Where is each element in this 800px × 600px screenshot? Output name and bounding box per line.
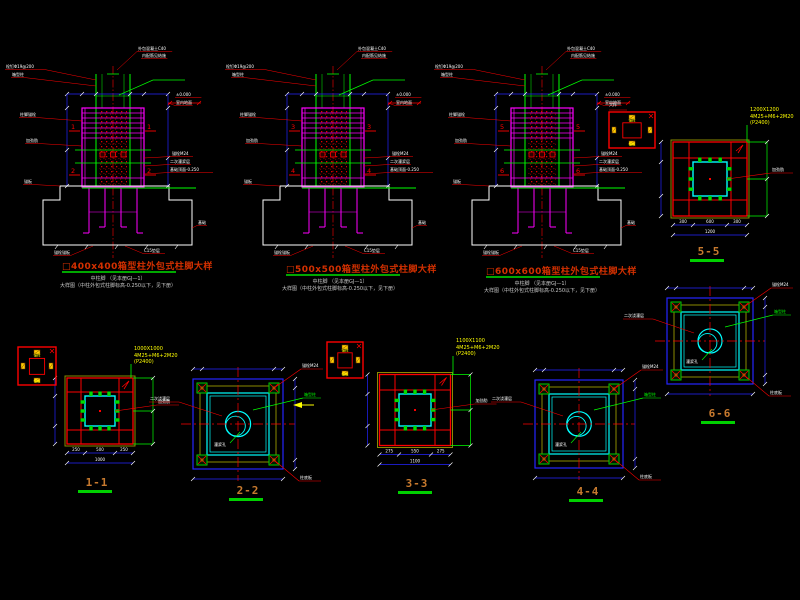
stiffener-tab <box>404 426 407 431</box>
stiffener-tab <box>719 196 722 201</box>
stiffener-tab <box>708 196 711 201</box>
annotation-leader <box>144 165 169 167</box>
annotation-leader <box>71 246 93 256</box>
section-label-1-1: 1-1 <box>75 476 119 489</box>
annotation-leader <box>462 185 489 187</box>
annotation-text: 灌浆孔 <box>214 441 226 447</box>
annotation-text: 基础 <box>627 219 635 225</box>
annotation-leader <box>265 70 316 81</box>
dim-label: 250 <box>72 447 80 452</box>
annotation-text: 锚板 <box>24 178 32 184</box>
annotation-text: 箱型柱 <box>12 71 24 77</box>
dim-label: 1000 <box>95 457 106 462</box>
annotation-text: 柱脚锚栓 <box>240 111 256 117</box>
annotation-text: 锚栓锚板 <box>274 249 290 255</box>
annotation-text: 栓钉Φ19@200 <box>226 63 254 69</box>
annotation-text: 箱型柱 <box>644 391 656 397</box>
dim-label: 300 <box>733 219 741 224</box>
section-marker: 6 <box>500 167 504 175</box>
annotation-leader <box>37 118 82 122</box>
annotation-leader <box>45 70 96 81</box>
dim-label: 250 <box>120 447 128 452</box>
annotation-text: 内配筋见结施 <box>571 52 595 58</box>
keybox-inner <box>338 353 352 368</box>
shear-key <box>550 152 555 157</box>
note-line: 大样图（中柱外包式柱脚标高-0.250以下，见下册） <box>8 283 228 290</box>
annotation-text: 基础顶面-0.250 <box>170 166 199 172</box>
annotation-text: ±0.000 <box>176 92 191 97</box>
annotation-leader <box>474 70 525 81</box>
annotation-leader <box>144 157 171 159</box>
annotation-leader <box>257 118 302 122</box>
shear-key <box>121 152 126 157</box>
keybox-label: 锚板 <box>342 372 350 377</box>
anchor-bolt-head <box>542 457 545 460</box>
grout-hole-inner <box>567 416 586 435</box>
elevation-view-d400: 1122栓钉Φ19@200箱型柱外包混凝土C40内配筋见结施±0.000室内地面… <box>5 45 213 258</box>
annotation-leader <box>554 246 572 254</box>
dim-label: 1200 <box>705 229 716 234</box>
annotation-leader <box>466 118 511 122</box>
stiffener-tab <box>727 167 732 170</box>
stiffener-tab <box>395 418 400 421</box>
shear-key <box>529 152 534 157</box>
annotation-leader <box>192 226 197 229</box>
annotation-text: 箱型柱 <box>304 391 316 397</box>
stiffener-tab <box>413 390 416 395</box>
footing-hatch <box>115 245 118 249</box>
annotation-leader <box>117 52 137 71</box>
annotation-text: 加劲肋 <box>772 166 784 172</box>
stiffener-tab <box>98 426 101 431</box>
title-underline <box>62 271 176 273</box>
footing-hatch <box>484 245 487 249</box>
annotation-text: ±0.000 <box>396 92 411 97</box>
center-point <box>414 409 416 411</box>
anchor-callout-1-1: 1000X1000 4M25+M6+2M20 (P2400) <box>134 346 178 366</box>
annotation-text: C15垫层 <box>144 247 160 253</box>
keybox-inner <box>623 123 641 138</box>
detail-notes-d400: 中柱脚 （见本册GJ—1） 大样图（中柱外包式柱脚标高-0.250以下，见下册） <box>8 276 228 290</box>
section-marker: 4 <box>291 167 295 175</box>
annotation-leader-green <box>253 398 303 410</box>
stiffener-tab <box>689 177 694 180</box>
concrete-fill <box>99 110 127 186</box>
annotation-text: 锚栓M24 <box>772 281 789 287</box>
plan-view-5-5: 3006003001200加劲肋 <box>659 125 793 237</box>
stiffener-tab <box>431 418 436 421</box>
section-label-underline <box>398 491 432 494</box>
note-line: 中柱脚 （见本册GJ—1） <box>432 281 652 288</box>
annotation-leader <box>24 78 96 87</box>
stiffener-tab <box>708 158 711 163</box>
detail-notes-d500: 中柱脚 （见本册GJ—1） 大样图（中柱外包式柱脚标高-0.250以下，见下册） <box>230 279 450 293</box>
stiffener-tab <box>107 392 110 397</box>
annotation-text: 加劲肋 <box>455 137 467 143</box>
annotation-leader-green <box>594 398 643 410</box>
anchor-bolt-head <box>200 386 203 389</box>
annotation-text: 锚栓M24 <box>392 150 409 156</box>
section-label-6-6: 6-6 <box>698 407 742 420</box>
grout-hole-inner <box>226 416 246 436</box>
annotation-text: 室内地面 <box>396 99 412 105</box>
footing-hatch <box>544 245 547 249</box>
concrete-fill <box>528 110 556 186</box>
dim-label: 600 <box>706 219 714 224</box>
grout-hole-inner <box>698 334 717 353</box>
section-marker: 1 <box>147 123 151 131</box>
plan-view-4-4: 锚栓M24柱底板二次浇灌层箱型柱灌浆孔 <box>491 363 663 480</box>
annotation-text: 锚板 <box>244 178 252 184</box>
section-label-underline <box>78 490 112 493</box>
stiffener-tab <box>81 409 86 412</box>
dim-label: 300 <box>679 219 687 224</box>
stiffener-tab <box>115 418 120 421</box>
annotation-text: 柱底板 <box>770 389 782 395</box>
section-marker: 3 <box>291 123 295 131</box>
annotation-leader <box>337 52 357 71</box>
annotation-text: 加劲肋 <box>476 397 488 403</box>
annotation-text: 栓钉Φ19@200 <box>435 63 463 69</box>
annotation-text: 基础 <box>418 219 426 225</box>
plan-view-3-3: 2755502751100加劲肋 <box>366 356 497 467</box>
section-label-2-2: 2-2 <box>226 484 270 497</box>
anchor-callout-5-5: 1200X1200 4M25+M6+2M20 (P2400) <box>750 107 794 127</box>
annotation-text: 外包混凝土C40 <box>567 45 595 51</box>
annotation-text: 基础顶面-0.250 <box>599 166 628 172</box>
annotation-leader <box>244 78 316 87</box>
annotation-text: 锚栓M24 <box>601 150 618 156</box>
annotation-leader <box>253 185 280 187</box>
footing-outline <box>472 186 621 245</box>
stiffener-tab <box>727 188 732 191</box>
stiffener-tab <box>81 418 86 421</box>
plan-view-1-1: 2505002501000加劲肋 <box>53 364 179 465</box>
stiffener-tab <box>395 399 400 402</box>
annotation-leader <box>33 185 60 187</box>
stiffener-tab <box>89 426 92 431</box>
annotation-leader <box>258 144 302 147</box>
annotation-text: 内配筋见结施 <box>142 52 166 58</box>
title-underline <box>486 276 600 278</box>
stiffener-tab <box>719 158 722 163</box>
annotation-text: 灌浆孔 <box>686 358 698 364</box>
section-marker: 3 <box>367 123 371 131</box>
annotation-text: C15垫层 <box>364 247 380 253</box>
footing-hatch <box>55 245 58 249</box>
annotation-leader <box>546 52 566 71</box>
annotation-text: 柱脚锚栓 <box>20 111 36 117</box>
footing-outline <box>263 186 412 245</box>
footing-hatch <box>335 245 338 249</box>
stiffener-tab <box>89 392 92 397</box>
annotation-text: 二次灌浆层 <box>170 158 190 164</box>
shear-key <box>111 152 116 157</box>
footing-outline <box>43 186 192 245</box>
annotation-text: 栓钉Φ19@200 <box>6 63 34 69</box>
stiffener-tab <box>698 158 701 163</box>
annotation-leader <box>453 78 525 87</box>
annotation-text: 灌浆孔 <box>555 441 567 447</box>
elevation-view-d600: 5566栓钉Φ19@200箱型柱外包混凝土C40内配筋见结施±0.000室内地面… <box>434 45 642 258</box>
annotation-text: 外包混凝土C40 <box>138 45 166 51</box>
anchor-bolt-head <box>542 387 545 390</box>
annotation-text: 二次灌浆层 <box>390 158 410 164</box>
section-label-underline <box>690 259 724 262</box>
annotation-text: 柱底板 <box>640 473 652 479</box>
annotation-text: 二次浇灌层 <box>624 312 644 318</box>
annotation-leader <box>291 246 313 256</box>
annotation-leader <box>125 246 143 254</box>
plan-view-6-6: 锚栓M24柱底板二次浇灌层箱型柱灌浆孔 <box>623 281 793 396</box>
callout-line: (P2400) <box>750 120 794 127</box>
anchor-callout-3-3: 1100X1100 4M25+M6+2M20 (P2400) <box>456 338 500 358</box>
anchor-bolt-head <box>674 305 677 308</box>
annotation-leader <box>412 226 417 229</box>
annotation-text: 室内地面 <box>176 99 192 105</box>
annotation-text: 箱型柱 <box>232 71 244 77</box>
annotation-text: 柱底板 <box>300 474 312 480</box>
annotation-text: 锚栓M24 <box>642 363 659 369</box>
annotation-text: C15垫层 <box>573 247 589 253</box>
keybox-inner <box>29 358 44 374</box>
center-point <box>709 178 711 180</box>
stiffener-tab <box>698 196 701 201</box>
annotation-text: 加劲肋 <box>26 137 38 143</box>
dim-label: 550 <box>411 449 419 454</box>
break-mark <box>440 378 447 386</box>
note-line: 大样图（中柱外包式柱脚标高-0.250以下，见下册） <box>432 288 652 295</box>
section-label-5-5: 5-5 <box>687 245 731 258</box>
annotation-leader <box>38 144 82 147</box>
callout-line: (P2400) <box>456 351 500 358</box>
stiffener-tab <box>404 390 407 395</box>
annotation-text: 箱型柱 <box>774 308 786 314</box>
detail-notes-d600: 中柱脚 （见本册GJ—1） 大样图（中柱外包式柱脚标高-0.250以下，见下册） <box>432 281 652 295</box>
stiffener-tab <box>81 400 86 403</box>
annotation-text: 基础 <box>198 219 206 225</box>
stiffener-tab <box>431 399 436 402</box>
annotation-text: 内配筋见结施 <box>362 52 386 58</box>
annotation-leader <box>573 157 600 159</box>
annotation-text: 二次浇灌层 <box>492 395 512 401</box>
footing-hatch <box>604 245 607 249</box>
break-mark <box>736 145 743 153</box>
annotation-text: 锚栓M24 <box>302 362 319 368</box>
break-mark <box>122 381 129 389</box>
annotation-text: 加劲肋 <box>246 137 258 143</box>
note-line: 中柱脚 （见本册GJ—1） <box>8 276 228 283</box>
annotation-leader <box>345 246 363 254</box>
keybox-label: 锚板 <box>34 379 41 384</box>
annotation-text: 锚栓M24 <box>172 150 189 156</box>
keybox-caption: 大样 <box>609 102 617 108</box>
footing-hatch <box>395 245 398 249</box>
yellow-marker-icon <box>293 402 302 408</box>
annotation-text: 锚栓锚板 <box>483 249 499 255</box>
annotation-text: 锚板 <box>453 178 461 184</box>
dim-label: 275 <box>385 449 393 454</box>
anchor-bolt-head <box>674 373 677 376</box>
section-marker: 5 <box>500 123 504 131</box>
keybox-label: 锚板 <box>629 142 637 147</box>
annotation-leader <box>573 165 598 167</box>
drawing-linework: 1122栓钉Φ19@200箱型柱外包混凝土C40内配筋见结施±0.000室内地面… <box>0 0 800 600</box>
dim-label: 275 <box>437 449 445 454</box>
keyed-detail-box: 锚栓锚板 <box>609 110 655 148</box>
annotation-leader <box>467 144 511 147</box>
annotation-text: 二次灌浆层 <box>599 158 619 164</box>
stiffener-tab <box>115 400 120 403</box>
section-marker: 5 <box>576 123 580 131</box>
footing-hatch <box>175 245 178 249</box>
footing-hatch <box>275 245 278 249</box>
annotation-text: 柱脚锚栓 <box>449 111 465 117</box>
shear-key <box>331 152 336 157</box>
annotation-text: ±0.000 <box>605 92 620 97</box>
anchor-bolt-head <box>200 458 203 461</box>
keyed-detail-box: 锚栓锚板 <box>18 347 56 385</box>
annotation-leader <box>500 246 522 256</box>
shear-key <box>341 152 346 157</box>
annotation-leader-green <box>230 432 240 443</box>
plan-view-2-2: 锚栓M24柱底板二次浇灌层箱型柱灌浆孔 <box>149 362 323 481</box>
section-marker: 1 <box>71 123 75 131</box>
annotation-leader-green <box>571 432 581 443</box>
annotation-text: 锚栓锚板 <box>54 249 70 255</box>
annotation-text: 箱型柱 <box>441 71 453 77</box>
annotation-leader <box>115 405 157 411</box>
section-label-3-3: 3-3 <box>395 477 439 490</box>
center-point <box>99 410 101 412</box>
stiffener-tab <box>107 426 110 431</box>
stiffener-tab <box>395 408 400 411</box>
section-label-underline <box>229 498 263 501</box>
shear-key <box>320 152 325 157</box>
section-label-underline <box>569 499 603 502</box>
keybox-label: 锚栓 <box>629 118 637 123</box>
stiffener-tab <box>423 390 426 395</box>
cad-sheet: 1122栓钉Φ19@200箱型柱外包混凝土C40内配筋见结施±0.000室内地面… <box>0 0 800 600</box>
keybox-label: 锚栓 <box>342 348 350 353</box>
section-label-4-4: 4-4 <box>566 485 610 498</box>
annotation-text: 基础顶面-0.250 <box>390 166 419 172</box>
note-line: 中柱脚 （见本册GJ—1） <box>230 279 450 286</box>
annotation-text: 外包混凝土C40 <box>358 45 386 51</box>
title-underline <box>286 274 400 276</box>
elevation-view-d500: 3344栓钉Φ19@200箱型柱外包混凝土C40内配筋见结施±0.000室内地面… <box>225 45 433 258</box>
annotation-leader-green <box>725 315 773 327</box>
shear-key <box>540 152 545 157</box>
section-marker: 2 <box>71 167 75 175</box>
annotation-leader <box>621 226 626 229</box>
stiffener-tab <box>689 188 694 191</box>
keyed-detail-box: 锚栓锚板 <box>327 342 363 378</box>
keybox-label: 锚栓 <box>34 353 41 358</box>
stiffener-tab <box>423 426 426 431</box>
concrete-fill <box>319 110 347 186</box>
stiffener-tab <box>689 167 694 170</box>
dim-label: 1100 <box>410 459 421 464</box>
dim-label: 500 <box>96 447 104 452</box>
stiffener-tab <box>98 392 101 397</box>
annotation-leader <box>364 157 391 159</box>
section-label-underline <box>701 421 735 424</box>
note-line: 大样图（中柱外包式柱脚标高-0.250以下，见下册） <box>230 286 450 293</box>
annotation-leader <box>364 165 389 167</box>
annotation-text: 二次浇灌层 <box>150 395 170 401</box>
callout-line: (P2400) <box>134 359 178 366</box>
shear-key <box>100 152 105 157</box>
stiffener-tab <box>413 426 416 431</box>
